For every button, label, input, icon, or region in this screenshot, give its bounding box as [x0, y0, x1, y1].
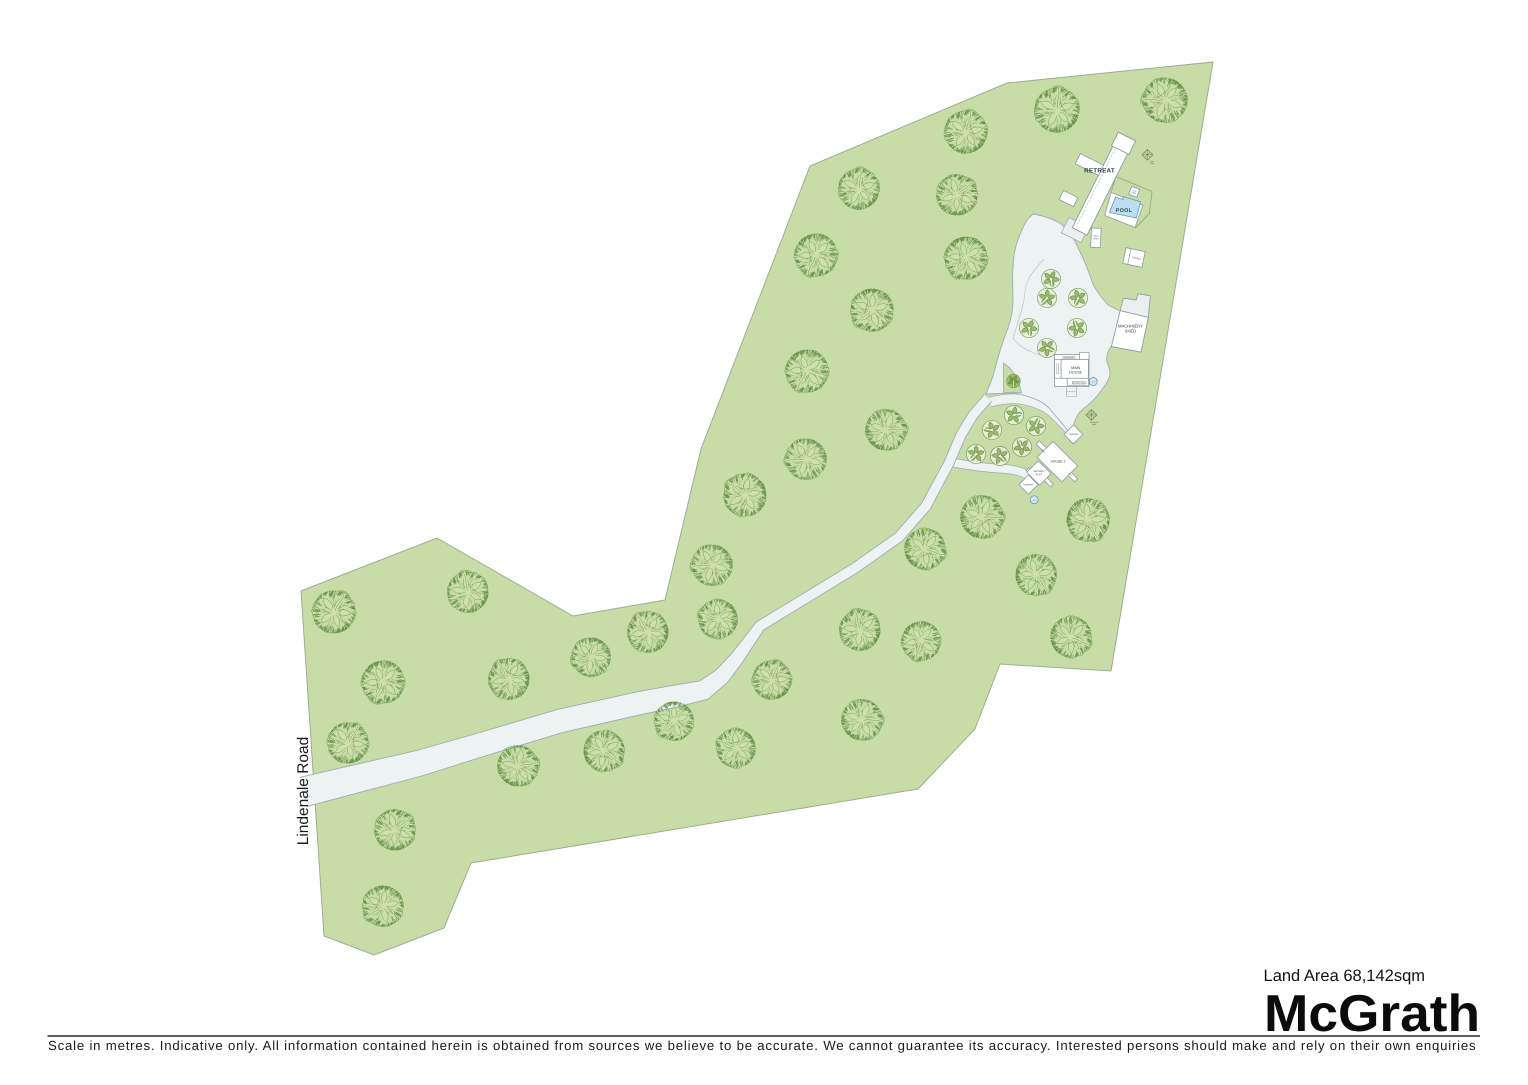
svg-text:FLAT: FLAT	[1036, 473, 1042, 476]
svg-text:VERANDAH: VERANDAH	[1064, 356, 1074, 359]
svg-text:CARPORT: CARPORT	[1068, 433, 1079, 436]
svg-text:MAIN: MAIN	[1071, 366, 1080, 370]
svg-text:CARPORT: CARPORT	[1023, 483, 1034, 486]
svg-text:HOUSE: HOUSE	[1069, 371, 1082, 375]
svg-text:W.T: W.T	[1092, 381, 1095, 384]
svg-text:W.T: W.T	[1033, 499, 1036, 502]
svg-text:COVERED AREA: COVERED AREA	[1072, 381, 1086, 384]
svg-text:SHED: SHED	[1125, 329, 1137, 334]
svg-text:Land Area 68,142sqm: Land Area 68,142sqm	[1264, 967, 1425, 985]
svg-text:Scale in metres. Indicative on: Scale in metres. Indicative only. All in…	[48, 1038, 1476, 1053]
svg-text:POOL: POOL	[1116, 208, 1133, 214]
svg-text:RETREAT: RETREAT	[1084, 168, 1115, 175]
svg-text:LOBBY: LOBBY	[1093, 237, 1100, 240]
svg-text:Lindenale Road: Lindenale Road	[295, 737, 312, 846]
svg-text:McGrath: McGrath	[1264, 985, 1480, 1043]
svg-text:HOUSE 2: HOUSE 2	[1050, 460, 1065, 464]
